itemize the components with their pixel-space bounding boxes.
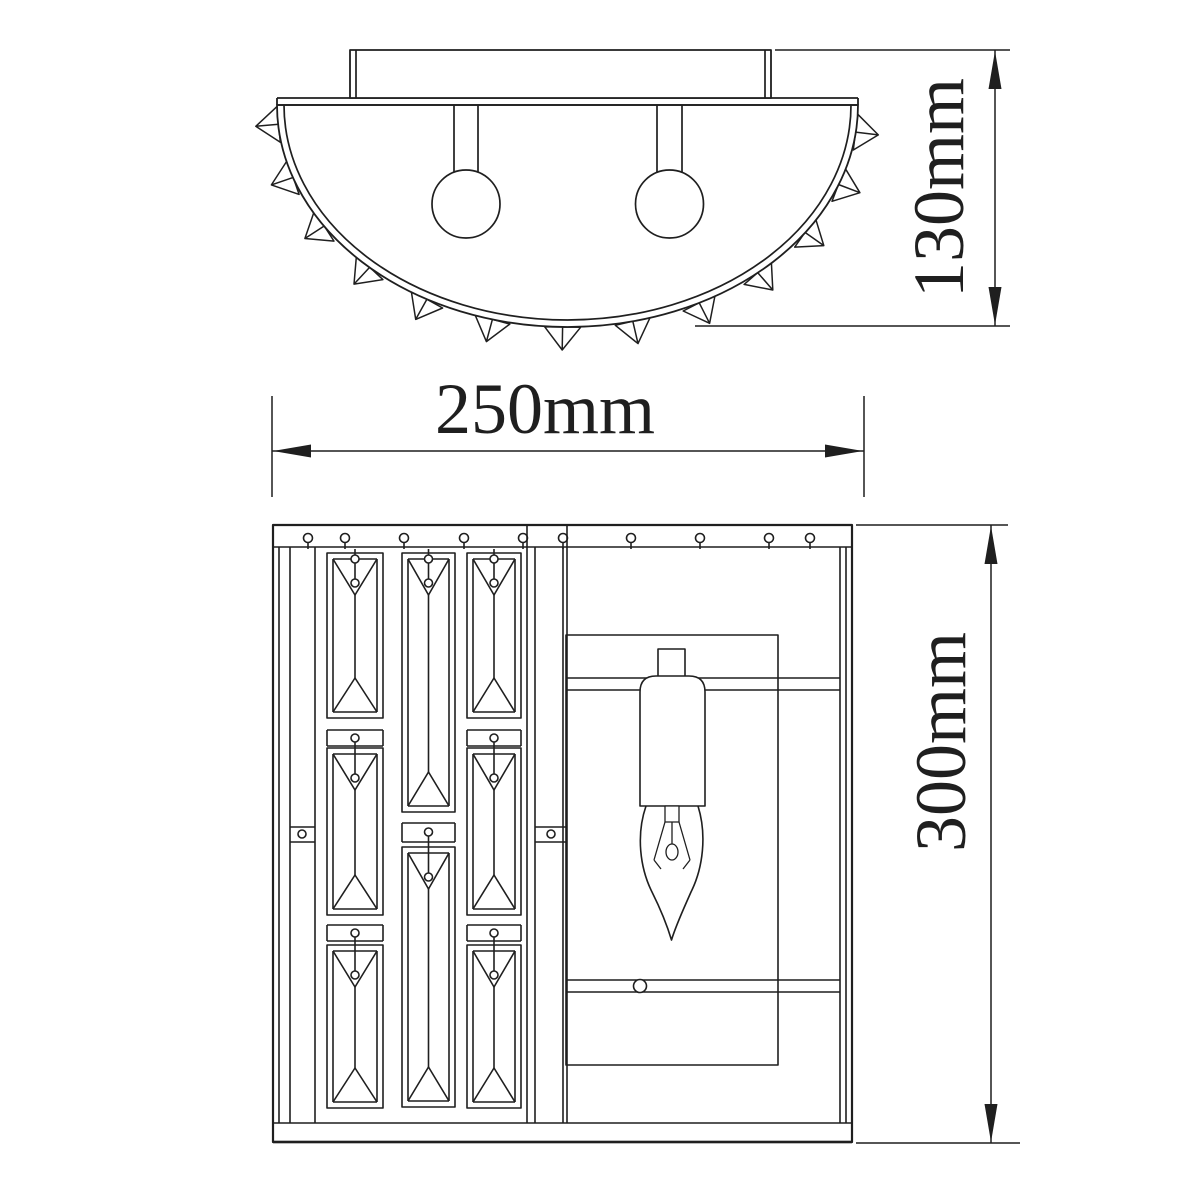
crystal-panel: [402, 549, 455, 812]
lower-rail-screw: [634, 980, 647, 993]
crystal-panel: [327, 734, 383, 915]
top-height-dimension-label: 130mm: [899, 78, 979, 298]
dome-rim-bar: [277, 98, 858, 105]
arrowhead-right: [825, 445, 863, 458]
left-stile: [290, 547, 315, 1123]
arrowhead-down: [985, 1104, 998, 1142]
mounting-plate: [350, 50, 771, 98]
width-dimension-label: 250mm: [435, 369, 655, 449]
crystal-panel: [402, 828, 455, 1107]
arrowhead-down: [989, 287, 1002, 325]
center-divider-stile: [527, 525, 567, 1123]
crystal-panel: [327, 929, 383, 1108]
crystal-panel-column-b: [402, 549, 455, 1107]
top-view: [256, 50, 879, 350]
right-bulb-holder: [636, 170, 704, 238]
crystal-panel: [467, 929, 521, 1108]
front-view: [273, 525, 852, 1142]
dome-outer-edge: [277, 105, 858, 327]
socket-nipple: [658, 649, 685, 678]
lamp-compartment: [566, 635, 840, 1065]
crystal-panel: [327, 549, 383, 718]
crystal-panel-column-a: [327, 549, 383, 1108]
front-height-dimension-label: 300mm: [901, 632, 981, 852]
left-bulb-holder: [432, 170, 500, 238]
bulb-filament: [654, 806, 690, 869]
arrowhead-up: [985, 526, 998, 564]
arrowhead-up: [989, 51, 1002, 89]
crystal-panel: [467, 549, 521, 718]
drawing-canvas: 250mm 130mm 300mm: [0, 0, 1200, 1200]
lamp-socket: [640, 676, 705, 806]
lower-rail: [567, 980, 840, 992]
arrowhead-left: [273, 445, 311, 458]
crystal-panel-column-c: [467, 549, 521, 1108]
crystal-panel: [467, 734, 521, 915]
